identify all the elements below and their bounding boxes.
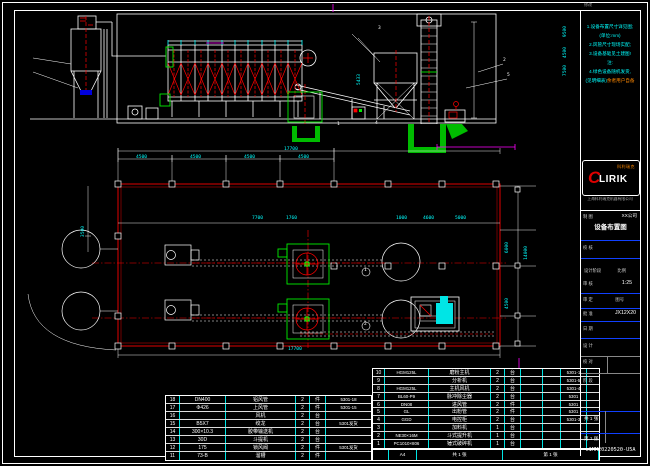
table-row: 6 DN08 进风管 2 件 5301: [373, 401, 599, 409]
table-row: 1 PC1010×806 锤式破碎机 1 台: [373, 440, 599, 448]
plan-elevator-cyan: [436, 296, 453, 324]
cell-extra2: [543, 369, 561, 376]
cell-name: 斗式提升机: [429, 432, 491, 439]
cell-remark: 5301-15: [326, 404, 371, 411]
plan-centerlines: [92, 230, 506, 348]
silo-discharge-band: [80, 90, 92, 95]
cell-name: 溜槽: [226, 452, 296, 460]
table-row: 18 DN400 铝风管 2 件 5301-18: [166, 396, 371, 404]
proof-label: 校 对: [583, 360, 593, 364]
cell-spec: GL: [385, 408, 429, 415]
cell-spec: B5X7: [180, 420, 226, 427]
cell-unit: 台: [310, 420, 326, 427]
table-row: 7 BL60-P9 脉冲除尘器 2 台 5301: [373, 393, 599, 401]
dim-label: 5000: [455, 217, 466, 222]
cell-extra1: [521, 369, 543, 376]
note-line: 注:: [581, 58, 639, 67]
cell-no: 7: [373, 393, 385, 400]
dim-label: 7500: [564, 65, 569, 76]
cell-no: 8: [373, 385, 385, 392]
table-row: 14 300×10.3 胶带输送机 2 台: [166, 428, 371, 436]
dim-label: 4500: [298, 156, 309, 161]
cell-divider: [607, 356, 608, 373]
parts-table-left: 18 DN400 铝风管 2 件 5301-18 17 Φ426 上风管 2 件…: [165, 395, 372, 461]
dim-label: 4: [375, 122, 378, 127]
cad-sheet: 1770045004500450045007700176010004600500…: [0, 0, 650, 466]
note-line: 4.绿色设备随机发货,: [581, 67, 639, 76]
cell-no: 16: [166, 412, 180, 419]
corner-code: c1MM20220520-U5A: [581, 448, 640, 453]
dim-label: 4600: [423, 217, 434, 222]
dwgno-value: JX12X20: [615, 311, 636, 316]
note-highlight: 余者用户自备: [607, 78, 635, 83]
cell-no: 13: [166, 436, 180, 443]
cell-qty: 2: [296, 436, 310, 443]
dim-label: 4500: [136, 156, 147, 161]
cell-extra1: [521, 416, 543, 423]
cell-extra2: [543, 401, 561, 408]
cell-unit: 台: [505, 385, 521, 392]
dim-label: 14000: [525, 246, 530, 260]
checked-label: 校 核: [583, 246, 593, 250]
cell-unit: 台: [310, 436, 326, 443]
cell-name: 脉冲除尘器: [429, 393, 491, 400]
cell-extra2: [543, 432, 561, 439]
plan-mills-green: [278, 244, 329, 339]
cell-no: 3: [373, 424, 385, 431]
cell-extra1: [521, 432, 543, 439]
cell-spec: 175: [180, 444, 226, 451]
dim-label: 9500: [564, 26, 569, 37]
table-row: 2 NE30×16M 斗式提升机 1 台: [373, 432, 599, 440]
review-label: 审 核: [583, 282, 593, 286]
scale-label: 比例: [617, 269, 626, 273]
cell-qty: 2: [296, 404, 310, 411]
cell-no: 5: [373, 408, 385, 415]
cell-spec: Φ426: [180, 404, 226, 411]
dim-label: 6000: [506, 242, 511, 253]
logo-box: 科利瑞克 C LIRIK: [582, 160, 640, 196]
table-row: 5 GL 出粉管 2 件 5301: [373, 408, 599, 416]
dim-label: 2: [364, 323, 367, 328]
table-row: 12 175 锁风阀 2 件 5301发货: [166, 444, 371, 452]
cell-no: 12: [166, 444, 180, 451]
dim-label: 4500: [506, 298, 511, 309]
cell-extra1: [521, 385, 543, 392]
cell-no: 4: [373, 416, 385, 423]
cell-qty: 2: [491, 401, 505, 408]
dim-label: 5433: [358, 74, 363, 85]
cell-no: 6: [373, 401, 385, 408]
drawing-title: 设备布置图: [581, 225, 640, 232]
cell-name: 出粉管: [429, 408, 491, 415]
cell-unit: 件: [310, 444, 326, 451]
cell-extra2: [543, 440, 561, 448]
cell-qty: 2: [491, 369, 505, 376]
cell-name: 锤式破碎机: [429, 440, 491, 448]
cell-spec: HGM125L: [385, 369, 429, 376]
cell-qty: 1: [491, 424, 505, 431]
cell-no: 18: [166, 396, 180, 403]
dim-label: 17700: [284, 148, 298, 153]
cell-extra2: [543, 377, 561, 384]
dim-label: 4500: [190, 156, 201, 161]
cell-no: 17: [166, 404, 180, 411]
title-block: 制 图 XX公司 设备布置图 校 核 设计阶段 比例 审 核 1:25 审 定 …: [581, 210, 640, 457]
cell-qty: 2: [491, 416, 505, 423]
note-line: (单位:mm): [581, 31, 639, 40]
cell-divider: [605, 411, 606, 443]
cell-no: 11: [166, 452, 180, 460]
cell-spec: BL60-P9: [385, 393, 429, 400]
cell-spec: [385, 424, 429, 431]
cell-spec: NE30×16M: [385, 432, 429, 439]
logo-orange-cn: 科利瑞克: [617, 164, 635, 170]
cell-no: 10: [373, 369, 385, 376]
cell-no: 9: [373, 377, 385, 384]
cell-remark: [326, 436, 371, 443]
cell-unit: 台: [505, 416, 521, 423]
cell-unit: 件: [505, 408, 521, 415]
dim-label: 1: [364, 269, 367, 274]
date-label: 日 期: [583, 327, 593, 331]
cell-spec: [180, 412, 226, 419]
dim-label: 4500: [244, 156, 255, 161]
dim-label: 7700: [252, 217, 263, 222]
cell-qty: 2: [296, 412, 310, 419]
stage-label: 阶 段: [583, 379, 593, 383]
cell-no: 2: [373, 432, 385, 439]
sheet-no: 第 1 张: [584, 437, 598, 442]
dim-label: 2: [503, 59, 506, 64]
cell-no: 1: [373, 440, 385, 448]
table-row: 13 30D 斗提机 2 台: [166, 436, 371, 444]
plan-dims: [85, 148, 536, 358]
cell-extra1: [521, 377, 543, 384]
cell-no: 14: [166, 428, 180, 435]
cell-unit: 台: [505, 393, 521, 400]
ratify-label: 批 准: [583, 312, 593, 316]
dim-label: 1760: [286, 217, 297, 222]
stage-small-label: 设计阶段: [584, 269, 601, 273]
cell-qty: 2: [491, 408, 505, 415]
cell-unit: 件: [310, 452, 326, 460]
cell-spec: 300×10.3: [180, 428, 226, 435]
cell-extra1: [521, 424, 543, 431]
dim-label: 1000: [396, 217, 407, 222]
table-row: 17 Φ426 上风管 2 件 5301-15: [166, 404, 371, 412]
cell-name: 胶带输送机: [226, 428, 296, 435]
cell-qty: 1: [491, 440, 505, 448]
note-line: 3.设备基础见土建图!: [581, 49, 639, 58]
cell-remark: 5301发货: [326, 420, 371, 427]
dwgno-label: 图号: [615, 298, 624, 302]
cell-spec: 30D: [180, 436, 226, 443]
cell-unit: 台: [505, 377, 521, 384]
note-line: (见明细表)余者用户自备: [581, 76, 639, 85]
cell-unit: 台: [505, 369, 521, 376]
table-row: 16 风机 2 台: [166, 412, 371, 420]
cell-name: 上风管: [226, 404, 296, 411]
company-name: XX公司: [622, 214, 637, 219]
sheets-total: 共 1 张: [584, 417, 598, 422]
cell-qty: 2: [491, 385, 505, 392]
logo-company-line: 上海科利瑞克机器有限公司: [581, 197, 639, 202]
cell-name: 铝风管: [226, 396, 296, 403]
logo-text: LIRIK: [599, 174, 628, 185]
cell-name: 绞龙: [226, 420, 296, 427]
cell-unit: 台: [505, 424, 521, 431]
cell-qty: 2: [296, 444, 310, 451]
strip-paper-size: A4: [389, 450, 417, 460]
table-row: 4 GGD 电控柜 2 台 5301-3: [373, 416, 599, 424]
cell-extra1: [521, 408, 543, 415]
dim-label: 1: [337, 123, 340, 128]
table-row: 3 加料机 1 台: [373, 424, 599, 432]
note-line: 2.风管尺寸现场实配;: [581, 40, 639, 49]
cell-name: 磨粉主机: [429, 369, 491, 376]
cell-unit: 台: [310, 412, 326, 419]
cell-extra2: [543, 393, 561, 400]
cell-name: 电控柜: [429, 416, 491, 423]
table-row: 10 HGM125L 磨粉主机 2 台 5301-1: [373, 369, 599, 377]
dim-label: 17700: [288, 348, 302, 353]
cell-qty: 2: [296, 396, 310, 403]
cell-unit: 台: [310, 428, 326, 435]
dim-label: 3500: [82, 226, 87, 237]
cell-name: 锁风阀: [226, 444, 296, 451]
parts-table-right: 10 HGM125L 磨粉主机 2 台 5301-1 9 分析机 2 台 530…: [372, 368, 600, 449]
cell-spec: [385, 377, 429, 384]
cell-extra2: [543, 385, 561, 392]
plan-equipment: [28, 230, 494, 350]
cell-qty: 2: [491, 377, 505, 384]
cell-qty: 2: [296, 420, 310, 427]
design-label: 设 计: [583, 344, 593, 348]
table-row: 11 73-B 溜槽 2 件: [166, 452, 371, 460]
cell-extra1: [521, 401, 543, 408]
cell-spec: PC1010×806: [385, 440, 429, 448]
cell-qty: 1: [491, 432, 505, 439]
table-row: 15 B5X7 绞龙 2 台 5301发货: [166, 420, 371, 428]
notes-block: 1.设备布置尺寸详见图;(单位:mm)2.风管尺寸现场实配;3.设备基础见土建图…: [581, 22, 639, 85]
cell-unit: 件: [310, 404, 326, 411]
dim-label: 5: [507, 74, 510, 79]
note-line: 1.设备布置尺寸详见图;: [581, 22, 639, 31]
cell-qty: 2: [296, 452, 310, 460]
cell-name: 加料机: [429, 424, 491, 431]
table-row: 8 HGM125L 主机风机 2 台 5301-4: [373, 385, 599, 393]
cell-spec: HGM125L: [385, 385, 429, 392]
drawn-label: 制 图: [583, 215, 593, 219]
cell-no: 15: [166, 420, 180, 427]
cell-unit: 台: [505, 432, 521, 439]
cell-extra2: [543, 408, 561, 415]
cell-qty: 2: [296, 428, 310, 435]
cell-remark: 5301发货: [326, 444, 371, 451]
cell-unit: 件: [310, 396, 326, 403]
cell-name: 进风管: [429, 401, 491, 408]
table-row: 9 分析机 2 台 5301-5: [373, 377, 599, 385]
cell-name: 斗提机: [226, 436, 296, 443]
dim-label: 3: [378, 27, 381, 32]
scale-value: 1:25: [622, 281, 632, 286]
magenta-dims: [206, 4, 519, 373]
cell-extra1: [521, 440, 543, 448]
strip-blank: [373, 450, 389, 460]
dim-label: 4500: [564, 47, 569, 58]
cell-unit: 台: [505, 440, 521, 448]
cell-extra2: [543, 424, 561, 431]
table-footer-strip: A4 共 1 张 第 1 张: [372, 449, 600, 461]
cell-name: 主机风机: [429, 385, 491, 392]
cell-remark: [326, 452, 371, 460]
cell-extra1: [521, 393, 543, 400]
panel-header-small: 修改: [584, 3, 592, 7]
cell-spec: 73-B: [180, 452, 226, 460]
strip-sheets-total: 共 1 张: [417, 450, 503, 460]
cell-unit: 件: [505, 401, 521, 408]
cell-spec: GGD: [385, 416, 429, 423]
cell-remark: 5301-18: [326, 396, 371, 403]
cell-name: 分析机: [429, 377, 491, 384]
cell-spec: DN400: [180, 396, 226, 403]
cell-spec: DN08: [385, 401, 429, 408]
cell-extra2: [543, 416, 561, 423]
cell-remark: [326, 428, 371, 435]
cell-remark: [326, 412, 371, 419]
cell-name: 风机: [226, 412, 296, 419]
approve-label: 审 定: [583, 298, 593, 302]
cell-qty: 2: [491, 393, 505, 400]
